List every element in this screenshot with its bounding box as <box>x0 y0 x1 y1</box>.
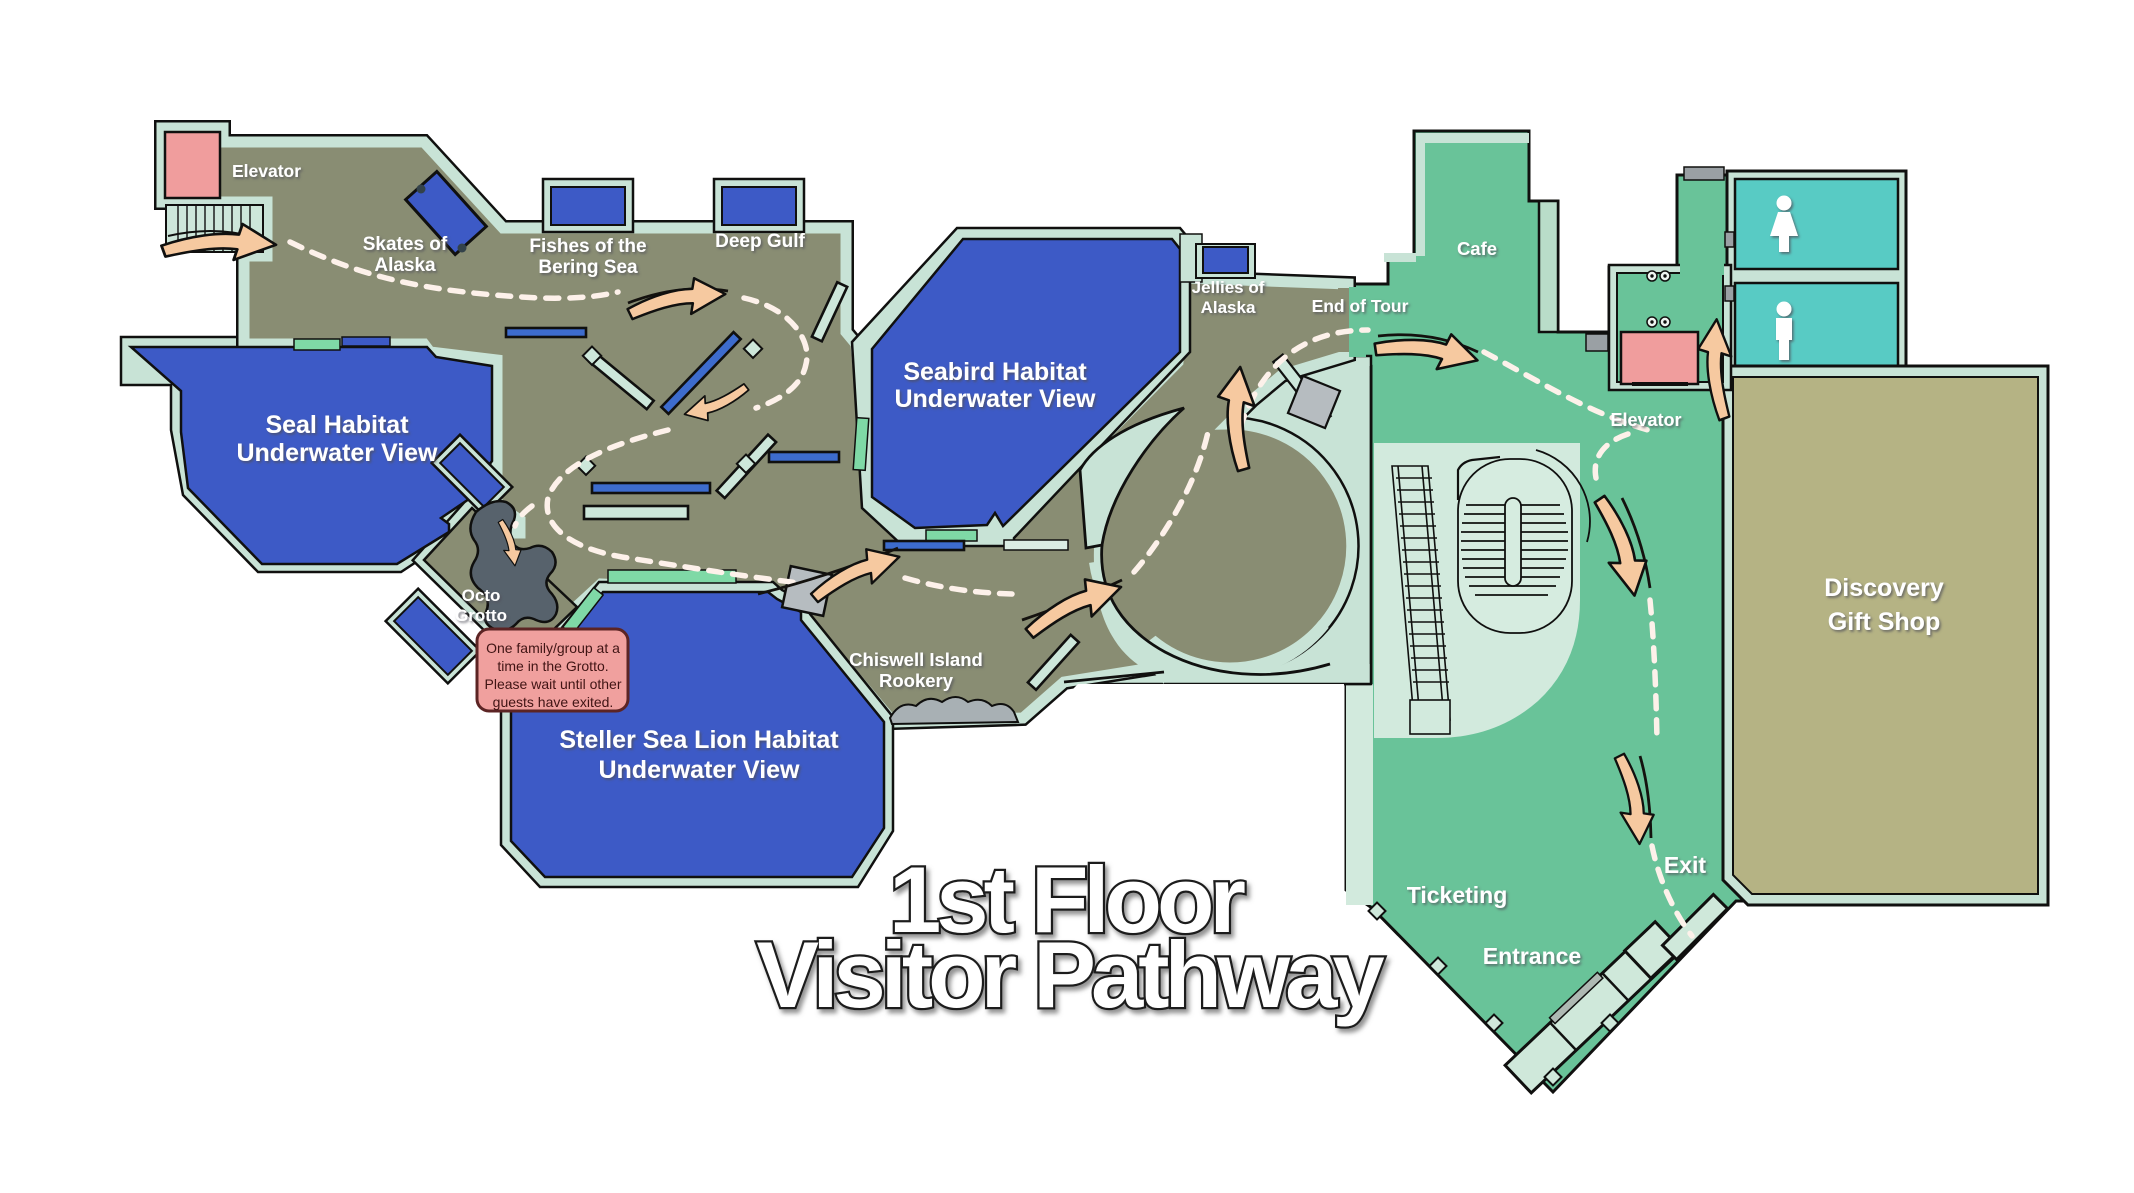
svg-text:Cafe: Cafe <box>1457 238 1497 259</box>
svg-text:Fishes of the: Fishes of the <box>529 236 646 257</box>
svg-text:Chiswell Island: Chiswell Island <box>849 649 983 670</box>
svg-text:End of Tour: End of Tour <box>1312 296 1409 316</box>
svg-text:Visitor Pathway: Visitor Pathway <box>756 922 1384 1027</box>
svg-text:Alaska: Alaska <box>1201 298 1256 317</box>
svg-text:Seabird Habitat: Seabird Habitat <box>903 358 1087 386</box>
svg-text:Jellies of: Jellies of <box>1192 278 1265 297</box>
svg-text:guests have exited.: guests have exited. <box>493 694 614 710</box>
svg-text:Exit: Exit <box>1664 852 1707 878</box>
svg-text:Octo: Octo <box>462 586 501 605</box>
svg-text:Ticketing: Ticketing <box>1407 882 1508 908</box>
svg-text:Underwater View: Underwater View <box>236 439 438 467</box>
svg-text:Gift Shop: Gift Shop <box>1828 608 1940 636</box>
svg-text:Grotto: Grotto <box>455 606 507 625</box>
svg-text:time in the Grotto.: time in the Grotto. <box>497 658 608 674</box>
svg-text:Skates of: Skates of <box>363 234 448 255</box>
svg-text:Underwater View: Underwater View <box>598 756 800 784</box>
svg-text:Underwater View: Underwater View <box>894 385 1096 413</box>
svg-text:Rookery: Rookery <box>879 670 954 691</box>
svg-text:Please wait until other: Please wait until other <box>485 676 622 692</box>
svg-text:Bering Sea: Bering Sea <box>538 257 638 278</box>
svg-text:Elevator: Elevator <box>232 161 301 181</box>
svg-text:Entrance: Entrance <box>1483 943 1581 969</box>
svg-text:Steller Sea Lion Habitat: Steller Sea Lion Habitat <box>559 726 839 754</box>
svg-text:One family/group at a: One family/group at a <box>486 640 620 656</box>
svg-text:Deep Gulf: Deep Gulf <box>715 231 805 252</box>
svg-text:Elevator: Elevator <box>1610 410 1681 430</box>
svg-text:Discovery: Discovery <box>1824 574 1944 602</box>
svg-text:Seal Habitat: Seal Habitat <box>265 411 409 439</box>
svg-text:Alaska: Alaska <box>374 255 436 276</box>
